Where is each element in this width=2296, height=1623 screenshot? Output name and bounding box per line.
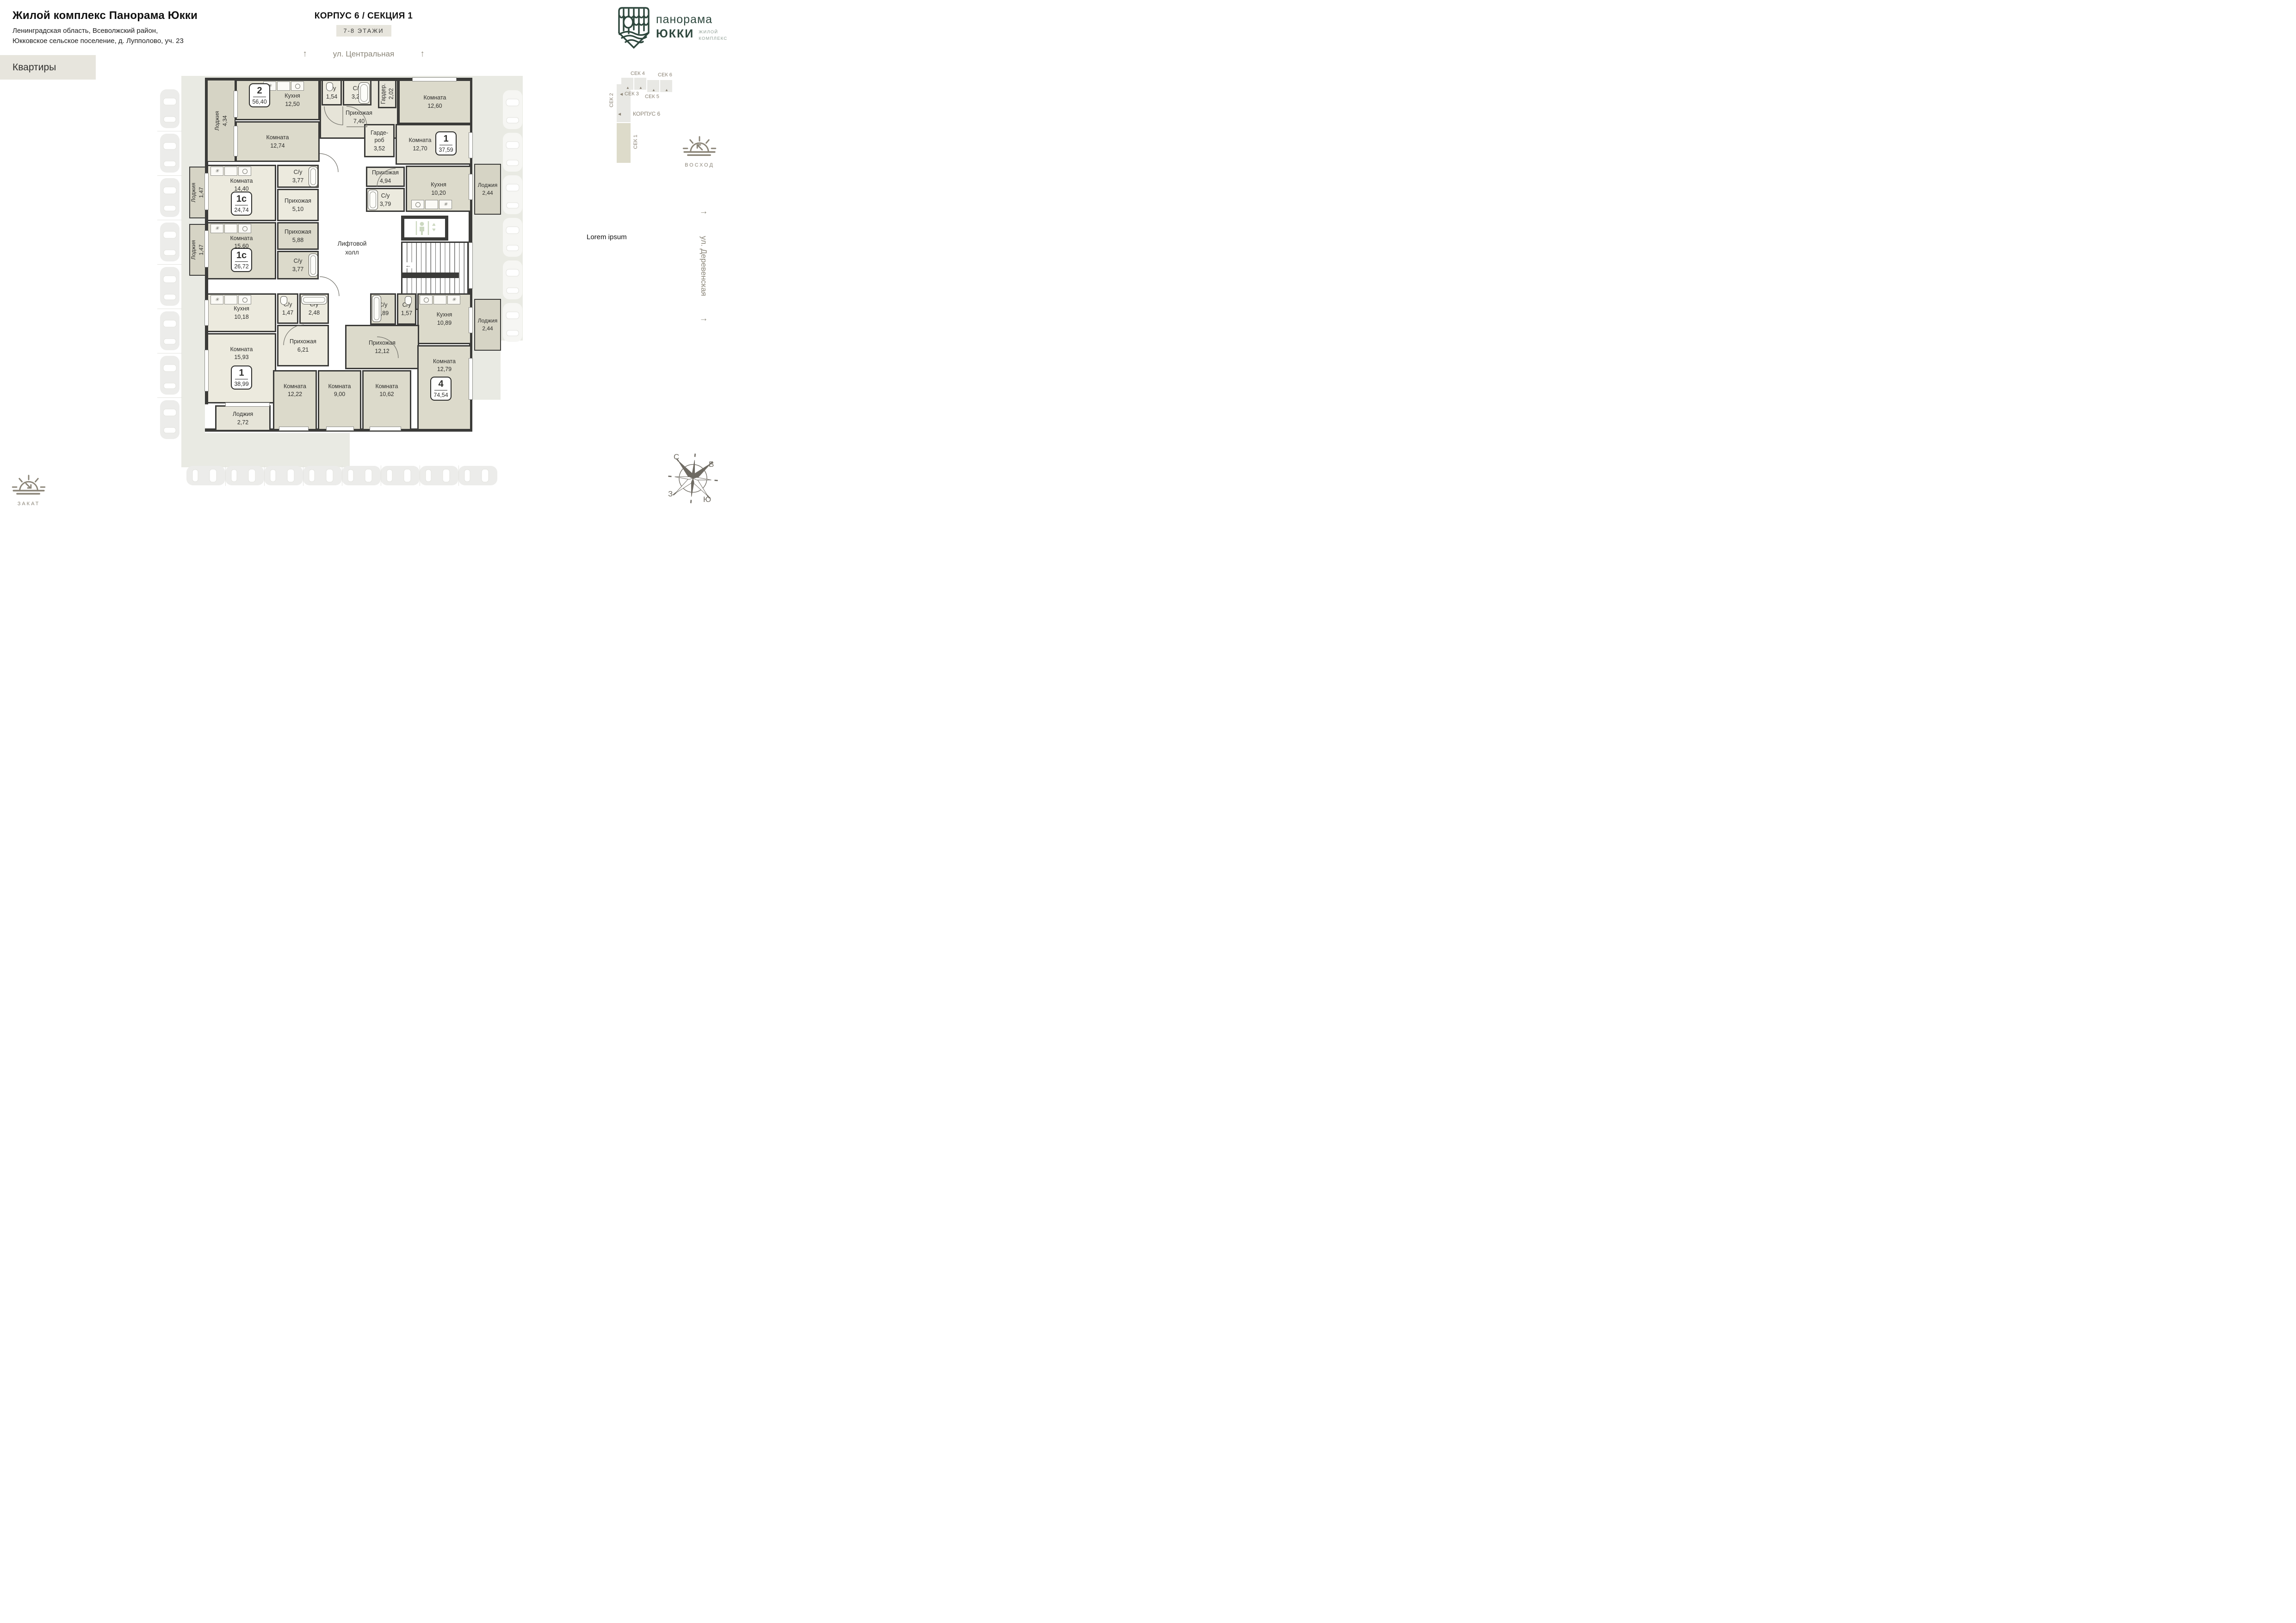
section-map-label-sek4: СЕК 4 — [631, 71, 645, 76]
window — [234, 91, 238, 118]
street-central: ↑ ул. Центральная ↑ — [271, 49, 456, 59]
sunrise-label: ВОСХОД — [681, 162, 718, 168]
kitchen-fixtures-icon — [210, 295, 251, 304]
parking-separator — [420, 465, 420, 486]
logo-tagline: ЖИЛОЙ КОМПЛЕКС — [699, 27, 727, 43]
section-map-label-sek1: СЕК 1 — [633, 135, 638, 149]
window — [469, 242, 473, 289]
bathtub-icon — [368, 190, 378, 210]
room-loggia[interactable]: Лоджия2,44 — [474, 299, 501, 351]
up-triangle-icon: ▲ — [626, 86, 630, 90]
floors-badge: 7-8 ЭТАЖИ — [336, 25, 391, 37]
room-hall[interactable]: Прихожая5,88 — [277, 222, 319, 250]
room-loggia[interactable]: Лоджия4,34 — [207, 80, 235, 162]
room-living[interactable]: Комната12,60 — [398, 80, 471, 124]
parking-separator — [225, 465, 226, 486]
parking-separator — [157, 397, 182, 398]
apartment-badge-1s-2474[interactable]: 1с24,74 — [231, 192, 252, 216]
parking-separator — [157, 175, 182, 176]
room-loggia[interactable]: Лоджия1,47 — [189, 167, 206, 218]
room-hall[interactable]: Прихожая5,10 — [277, 189, 319, 221]
bathtub-icon — [309, 254, 318, 277]
street-derevenskaya: ↑ ул. Деревенская ↑ — [699, 210, 709, 322]
lift-hall-label: Лифтовойхолл — [324, 240, 380, 257]
logo-brand-bottom: ЮККИ — [656, 27, 694, 41]
car-icon — [185, 464, 227, 487]
up-triangle-icon: ▲ — [665, 88, 668, 92]
window — [469, 174, 473, 200]
section-map-box-sek1-current[interactable] — [617, 123, 631, 163]
toilet-icon — [326, 82, 333, 91]
parking-separator — [157, 264, 182, 265]
up-arrow-icon: ↑ — [303, 49, 307, 59]
left-triangle-icon: ◀ — [620, 93, 623, 96]
room-loggia[interactable]: Лоджия2,72 — [215, 405, 271, 431]
car-icon — [158, 132, 181, 174]
up-arrow-icon: ↑ — [420, 49, 425, 59]
car-icon — [158, 221, 181, 263]
bathtub-icon — [301, 295, 327, 304]
apartment-badge-1s-2672[interactable]: 1с26,72 — [231, 248, 252, 272]
compass-south-label: Ю — [703, 495, 711, 504]
tab-apartments-label: Квартиры — [0, 62, 56, 73]
car-icon — [340, 464, 382, 487]
window — [469, 307, 473, 333]
compass-icon — [664, 450, 722, 507]
window — [204, 173, 209, 210]
room-living[interactable]: Комната12,22 — [273, 370, 317, 430]
up-arrow-icon: ↑ — [699, 317, 709, 322]
section-map-label-sek2: СЕК 2 — [609, 93, 614, 107]
compass-north-label: С — [674, 452, 679, 462]
sunset-icon — [11, 472, 46, 497]
car-icon — [158, 177, 181, 218]
kitchen-fixtures-icon — [210, 224, 251, 233]
compass-east-label: В — [709, 460, 714, 469]
car-icon — [457, 464, 499, 487]
car-icon — [501, 131, 524, 173]
note-text: Lorem ipsum — [587, 233, 627, 241]
bathtub-icon — [359, 82, 370, 104]
apartment-badge-1-3899[interactable]: 138,99 — [231, 365, 252, 390]
floor-plan: Лоджия4,34 Кухня12,50 Комната12,74 Прихо… — [205, 78, 472, 433]
car-icon — [418, 464, 460, 487]
parking-separator — [157, 131, 182, 131]
logo-tag-line1: ЖИЛОЙ — [699, 29, 727, 36]
address-line-1: Ленинградская область, Всеволжский район… — [12, 26, 198, 36]
room-hall[interactable]: Прихожая4,94 — [366, 167, 405, 187]
sunset-label: ЗАКАТ — [10, 501, 47, 507]
car-icon — [379, 464, 421, 487]
sunrise-icon — [682, 133, 717, 158]
car-icon — [224, 464, 266, 487]
room-wardrobe[interactable]: Гардер.2,02 — [378, 80, 396, 108]
window — [469, 358, 473, 400]
logo-shield-icon — [618, 6, 650, 49]
room-living[interactable]: Комната9,00 — [318, 370, 361, 430]
parking-separator — [157, 353, 182, 353]
kitchen-fixtures-icon — [411, 200, 452, 209]
window — [412, 77, 457, 81]
car-icon — [501, 174, 524, 216]
room-loggia[interactable]: Лоджия1,47 — [189, 224, 206, 276]
up-triangle-icon: ▲ — [639, 86, 643, 90]
elevator — [401, 216, 448, 241]
apartment-badge-4-7454[interactable]: 474,54 — [430, 377, 452, 401]
street-derevenskaya-label: ул. Деревенская — [699, 236, 708, 296]
car-icon — [263, 464, 304, 487]
kitchen-fixtures-icon — [210, 167, 251, 176]
plan-header: КОРПУС 6 / СЕКЦИЯ 1 7-8 ЭТАЖИ — [271, 11, 456, 37]
parking-separator — [303, 465, 303, 486]
compass-west-label: З — [668, 489, 673, 499]
address-line-2: Юкковское сельское поселение, д. Лупполо… — [12, 36, 198, 46]
parking-separator — [381, 465, 381, 486]
car-icon — [158, 399, 181, 440]
car-icon — [158, 310, 181, 352]
parking-separator — [157, 220, 182, 220]
up-arrow-icon: ↑ — [699, 210, 709, 215]
sunset-block: ЗАКАТ — [10, 472, 47, 507]
complex-title: Жилой комплекс Панорама Юкки — [12, 9, 198, 22]
floorplan-page: { "header": { "title": "Жилой комплекс П… — [0, 0, 725, 513]
room-living[interactable]: Комната10,62 — [362, 370, 411, 430]
up-triangle-icon: ▲ — [652, 88, 656, 92]
toilet-icon — [405, 296, 412, 305]
parking-separator — [264, 465, 265, 486]
bathtub-icon — [309, 167, 318, 187]
section-map-label-sek5: СЕК 5 — [645, 94, 659, 99]
room-living[interactable]: Комната12,74 — [235, 121, 320, 162]
room-hall[interactable]: Прихожая6,21 — [277, 325, 329, 366]
apartment-badge-2[interactable]: 256,40 — [249, 83, 270, 107]
kitchen-fixtures-icon — [420, 295, 460, 304]
complex-address: Ленинградская область, Всеволжский район… — [12, 26, 198, 46]
car-icon — [302, 464, 343, 487]
logo-brand-top: панорама — [656, 13, 727, 26]
room-wardrobe[interactable]: Гарде- роб3,52 — [364, 124, 395, 157]
car-icon — [501, 259, 524, 301]
compass-rose: С В З Ю — [664, 450, 722, 509]
room-living[interactable]: Комната12,70 — [396, 124, 471, 165]
window — [225, 403, 270, 407]
room-loggia[interactable]: Лоджия2,44 — [474, 164, 501, 215]
parking-separator — [458, 465, 459, 486]
section-map-box-sek2[interactable] — [617, 84, 631, 122]
car-icon — [158, 266, 181, 307]
logo-tag-line2: КОМПЛЕКС — [699, 36, 727, 42]
window — [204, 230, 209, 267]
left-triangle-icon: ◀ — [618, 112, 621, 116]
page-header: Жилой комплекс Панорама Юкки Ленинградск… — [12, 9, 198, 46]
brand-logo[interactable]: панорама ЮККИ ЖИЛОЙ КОМПЛЕКС — [618, 6, 727, 49]
car-icon — [501, 217, 524, 258]
toilet-icon — [280, 296, 287, 305]
window — [204, 350, 209, 391]
parking-separator — [342, 465, 342, 486]
apartment-badge-1-3759[interactable]: 137,59 — [435, 131, 457, 155]
tab-apartments[interactable]: Квартиры — [0, 55, 96, 80]
car-icon — [158, 88, 181, 130]
section-map-korpus-label: КОРПУС 6 — [633, 111, 660, 117]
room-hall[interactable]: Прихожая12,12 — [345, 325, 419, 369]
window — [469, 132, 473, 158]
window — [370, 427, 401, 431]
section-map-label-sek6: СЕК 6 — [658, 72, 672, 78]
window — [326, 427, 354, 431]
car-icon — [158, 354, 181, 396]
stairs-up-arrow-icon: ← — [404, 262, 412, 268]
parking-separator — [157, 309, 182, 309]
window — [204, 300, 209, 326]
logo-wordmark: панорама ЮККИ ЖИЛОЙ КОМПЛЕКС — [656, 6, 727, 43]
window — [234, 126, 238, 156]
korpus-section-title: КОРПУС 6 / СЕКЦИЯ 1 — [271, 11, 456, 21]
car-icon — [501, 302, 524, 343]
street-central-label: ул. Центральная — [333, 50, 394, 59]
elevator-icon — [414, 220, 435, 236]
section-map-label-sek3: СЕК 3 — [625, 91, 639, 97]
bathtub-icon — [372, 295, 381, 322]
car-icon — [501, 89, 524, 130]
window — [279, 427, 309, 431]
sunrise-block: ВОСХОД — [681, 133, 718, 168]
